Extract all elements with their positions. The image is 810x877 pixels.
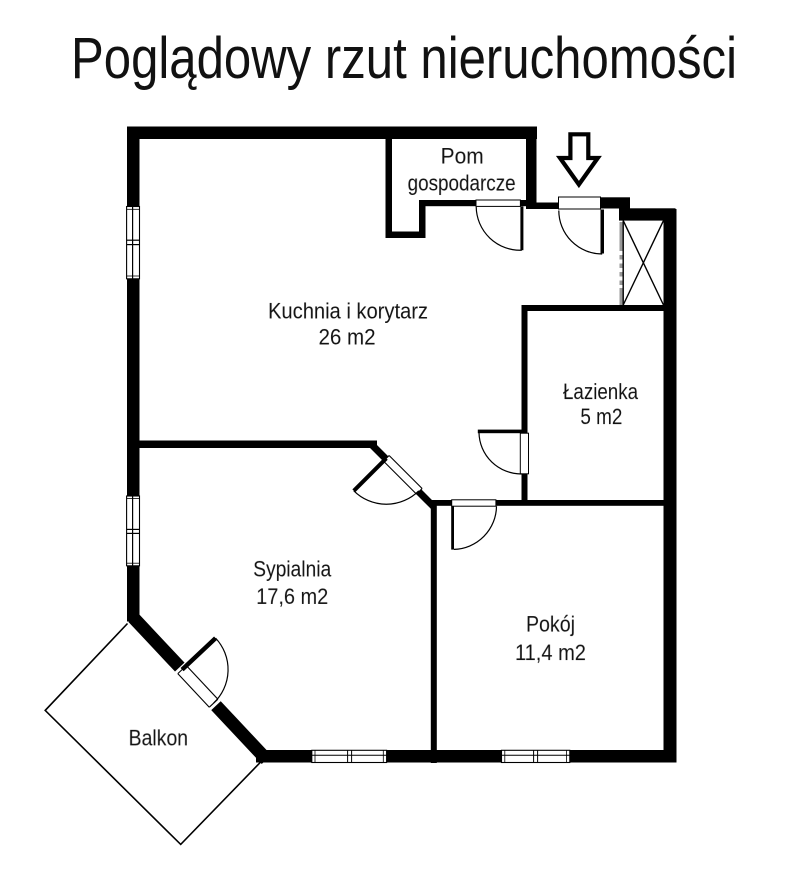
svg-text:Sypialnia: Sypialnia xyxy=(253,556,331,581)
svg-text:Pokój: Pokój xyxy=(526,612,575,637)
svg-text:Łazienka: Łazienka xyxy=(563,379,638,404)
svg-text:11,4 m2: 11,4 m2 xyxy=(515,640,586,665)
svg-text:gospodarcze: gospodarcze xyxy=(408,171,516,196)
svg-text:Kuchnia i korytarz: Kuchnia i korytarz xyxy=(268,298,428,323)
svg-text:5 m2: 5 m2 xyxy=(580,404,622,429)
svg-text:Pom: Pom xyxy=(441,144,484,169)
svg-text:Balkon: Balkon xyxy=(129,725,189,750)
svg-text:17,6 m2: 17,6 m2 xyxy=(256,584,328,609)
svg-text:Poglądowy rzut nieruchomości: Poglądowy rzut nieruchomości xyxy=(71,26,737,91)
svg-text:26 m2: 26 m2 xyxy=(319,324,376,349)
